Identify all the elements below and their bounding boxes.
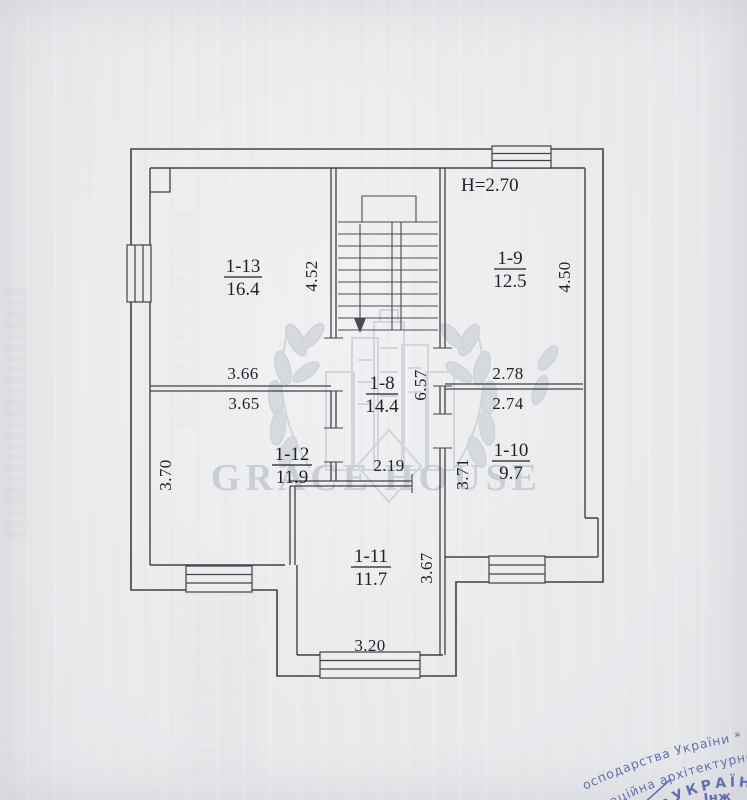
- window-south-room111-icon: [320, 652, 420, 678]
- room-1-10-area: 9.7: [499, 463, 523, 484]
- window-north-icon: [492, 146, 551, 168]
- arrow-head-icon: [354, 318, 366, 333]
- window-south-room110-icon: [489, 556, 545, 583]
- dim-r19-height: 4.50: [555, 261, 574, 292]
- dim-r19-width: 2.78: [492, 364, 523, 383]
- dim-hall-width: 2.19: [373, 456, 404, 475]
- room-1-9-id: 1-9: [497, 248, 522, 269]
- dim-r113-width: 3.66: [227, 364, 258, 383]
- room-1-13-id: 1-13: [226, 256, 261, 277]
- room-1-8-area: 14.4: [365, 396, 399, 417]
- scanned-document-page: GRACE HOUSE: [0, 0, 747, 800]
- official-stamp: осподарства України * Мі стаційна архіте…: [580, 726, 747, 800]
- room-1-8-id: 1-8: [369, 373, 394, 394]
- room-1-12-area: 11.9: [276, 467, 309, 488]
- dim-r111-height: 3.67: [417, 552, 436, 583]
- room-1-10-id: 1-10: [494, 440, 529, 461]
- room-1-11-area: 11.7: [355, 569, 388, 590]
- stamp-center-fragment-text: Інж: [703, 789, 733, 800]
- wall-notch: [150, 168, 170, 192]
- dim-r112-width: 3.65: [228, 394, 259, 413]
- room-1-11-id: 1-11: [354, 546, 388, 567]
- ceiling-height-note: H=2.70: [461, 175, 519, 196]
- window-west-icon: [127, 245, 151, 302]
- dim-r112-height: 3.70: [156, 459, 175, 490]
- window-south-room112-icon: [186, 566, 252, 592]
- room-1-12-id: 1-12: [275, 444, 310, 465]
- dim-r113-height: 4.52: [302, 260, 321, 291]
- floor-plan-drawing: GRACE HOUSE: [0, 0, 747, 800]
- dim-r111-width: 3.20: [354, 636, 385, 655]
- dim-r110-width: 2.74: [492, 394, 523, 413]
- staircase: [338, 196, 438, 333]
- dim-hall-height: 6.57: [411, 369, 430, 400]
- room-1-9-area: 12.5: [493, 271, 526, 292]
- room-1-13-area: 16.4: [226, 279, 260, 300]
- dim-r110-height: 3.71: [453, 458, 472, 489]
